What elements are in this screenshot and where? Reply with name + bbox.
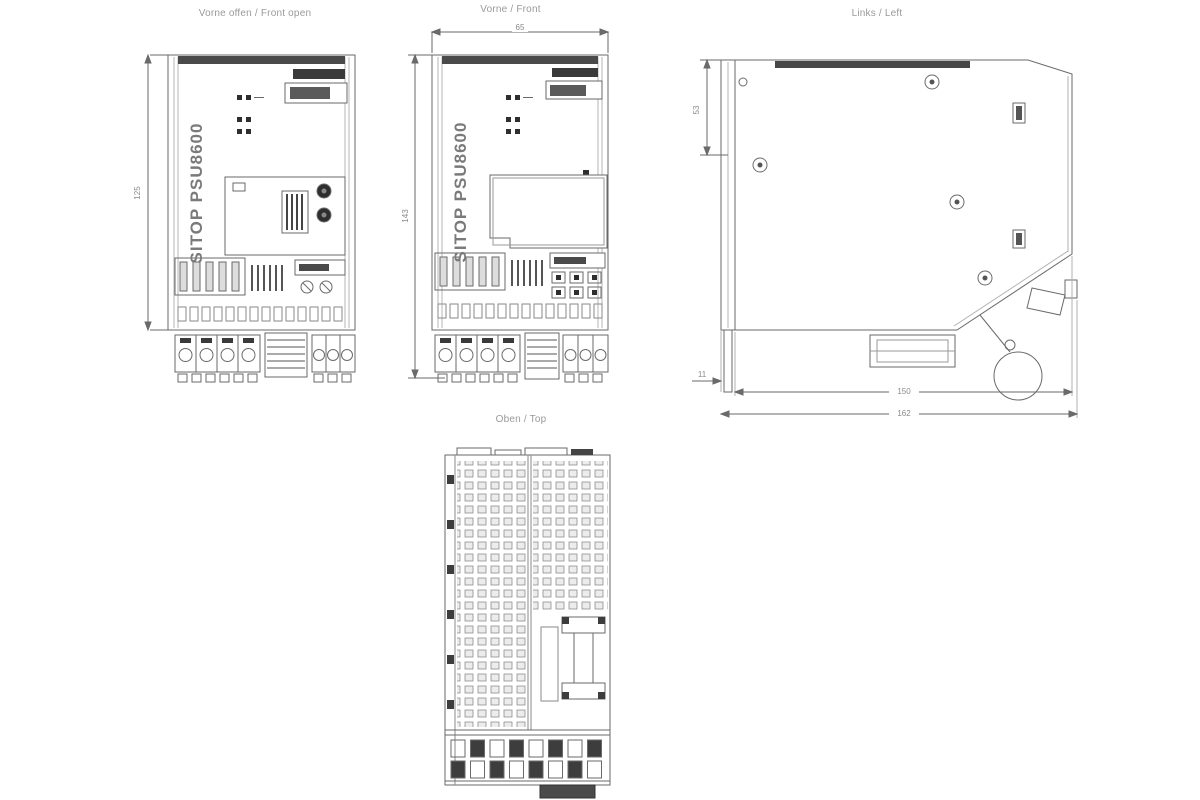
top-heatsink-bar xyxy=(178,56,345,64)
view-title-front-open: Vorne offen / Front open xyxy=(150,8,360,19)
terminal-cover xyxy=(490,175,607,248)
dim-front-open-height: 125 xyxy=(133,186,142,200)
dim-front-width: 65 xyxy=(516,23,525,32)
ventilation-grille xyxy=(533,461,608,611)
rating-label xyxy=(293,69,345,79)
dim-left-depth: 150 xyxy=(897,387,911,396)
product-label-text: SITOP PSU8600 xyxy=(451,122,470,263)
housing-outline xyxy=(735,60,1072,330)
ventilation-grille xyxy=(457,461,526,727)
rating-label xyxy=(552,68,598,77)
bottom-connector-tab xyxy=(540,785,595,798)
front-open-view-drawing: 125 SITOP PSU8600 xyxy=(130,25,380,385)
front-view-drawing: 65 143 SITOP PSU8600 xyxy=(400,20,620,392)
dim-left-front-offset: 11 xyxy=(698,370,707,379)
dimension-drawing-sheet: Vorne offen / Front open Vorne / Front L… xyxy=(0,0,1200,800)
top-heatsink-bar xyxy=(442,56,598,64)
top-heatsink-bar xyxy=(775,61,970,68)
screw-terminals xyxy=(175,333,355,382)
screw-terminals xyxy=(435,333,608,382)
view-title-left: Links / Left xyxy=(792,8,962,19)
product-label-text: SITOP PSU8600 xyxy=(187,123,206,264)
left-side-view-drawing: 53 11 150 162 xyxy=(680,40,1110,430)
view-title-front: Vorne / Front xyxy=(428,4,593,15)
dim-left-upper-height: 53 xyxy=(692,105,701,114)
dim-front-height: 143 xyxy=(401,209,410,223)
top-view-drawing xyxy=(425,445,625,800)
dim-left-total-depth: 162 xyxy=(897,409,911,418)
view-title-top: Oben / Top xyxy=(440,414,602,425)
